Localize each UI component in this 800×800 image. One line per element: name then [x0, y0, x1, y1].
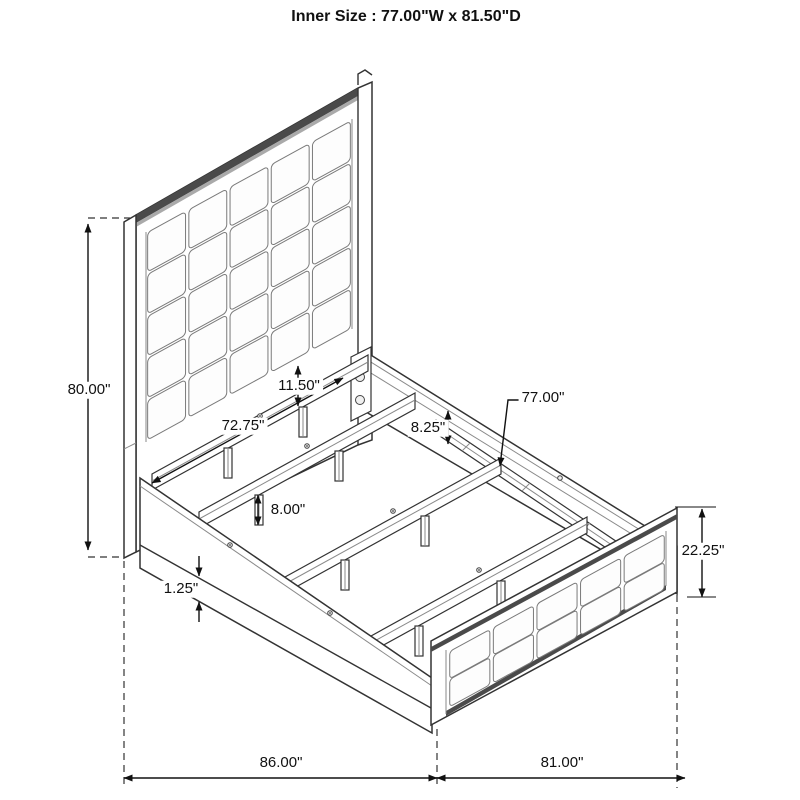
- dim-label-footboard-height: 22.25": [679, 543, 728, 560]
- dim-label-rail-top-gap: 8.25": [408, 420, 449, 437]
- dim-label-headboard-height: 80.00": [65, 382, 114, 399]
- dim-label-rail-trim: 1.25": [161, 581, 202, 598]
- diagram-title: Inner Size : 77.00"W x 81.50"D: [291, 8, 521, 26]
- dim-label-inner-width: 77.00": [519, 390, 568, 407]
- dim-label-overall-length: 86.00": [257, 755, 306, 772]
- dim-label-panel-gap: 11.50": [275, 378, 323, 395]
- dim-label-overall-width: 81.00": [538, 755, 587, 772]
- dim-label-leg-height: 8.00": [268, 502, 309, 519]
- bed-frame-line-art: [0, 0, 800, 800]
- dim-label-slat-length: 72.75": [219, 418, 268, 435]
- bed-dimension-diagram: Inner Size : 77.00"W x 81.50"D 80.00" 11…: [0, 0, 800, 800]
- slat-2: [285, 458, 501, 593]
